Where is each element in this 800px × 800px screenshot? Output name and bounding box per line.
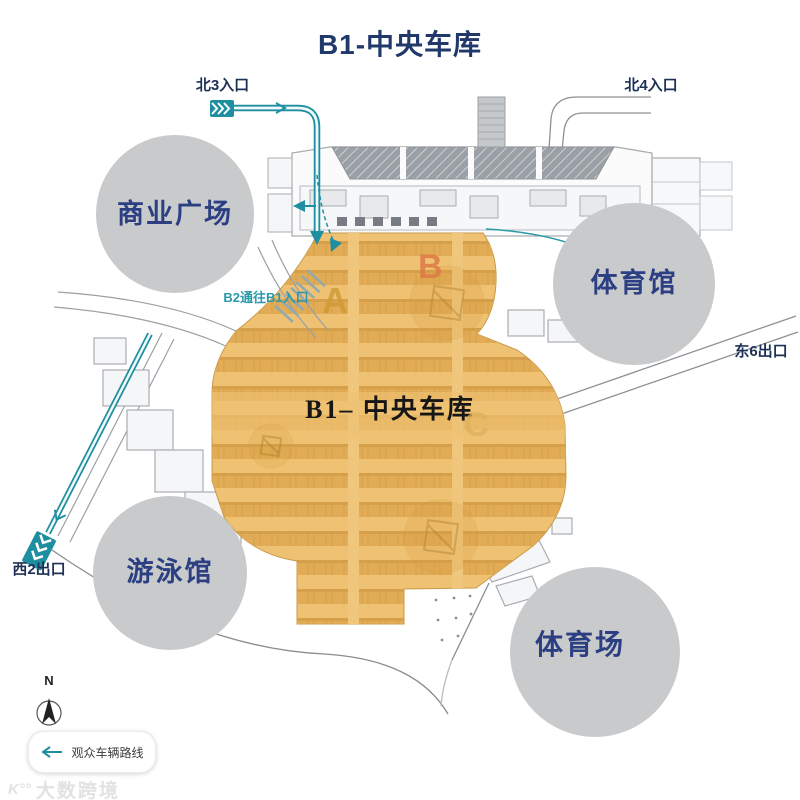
entrance-north3-label: 北3入口 xyxy=(180,78,265,95)
venue-gym-label: 体育馆 xyxy=(554,269,714,299)
compass-icon xyxy=(37,698,61,725)
garage-map-page: B1-中央车库 北3入口 北4入口 东6出口 西2出口 B2通往B1入口 商业广… xyxy=(0,0,800,800)
watermark-logo: K°° xyxy=(8,781,31,798)
zone-c-label: C xyxy=(464,406,489,445)
venue-plaza-label: 商业广场 xyxy=(95,200,255,230)
notch-survey-dots xyxy=(435,595,473,642)
page-title: B1-中央车库 xyxy=(0,30,800,61)
parking-stamp-icon xyxy=(404,500,478,574)
b2-ramp-note: B2通往B1入口 xyxy=(206,291,326,305)
watermark-name: 大数跨境 xyxy=(36,776,120,800)
parking-stamp-icon xyxy=(249,424,293,468)
legend-route-box: 观众车辆路线 xyxy=(28,731,156,773)
zone-b-label: B xyxy=(418,248,443,287)
entrance-north4-label: 北4入口 xyxy=(608,78,694,95)
exit-east6-label: 东6出口 xyxy=(722,344,800,361)
zone-a-label: A xyxy=(322,280,348,322)
route-arrow-icon xyxy=(40,746,64,758)
venue-stadium-label: 体育场 xyxy=(500,630,660,661)
legend-route-label: 观众车辆路线 xyxy=(71,744,143,761)
watermark: K°° 大数跨境 xyxy=(8,776,120,800)
compass-north-label: N xyxy=(40,674,58,688)
venue-pool-label: 游泳馆 xyxy=(90,558,250,588)
exit-west2-label: 西2出口 xyxy=(8,562,70,579)
